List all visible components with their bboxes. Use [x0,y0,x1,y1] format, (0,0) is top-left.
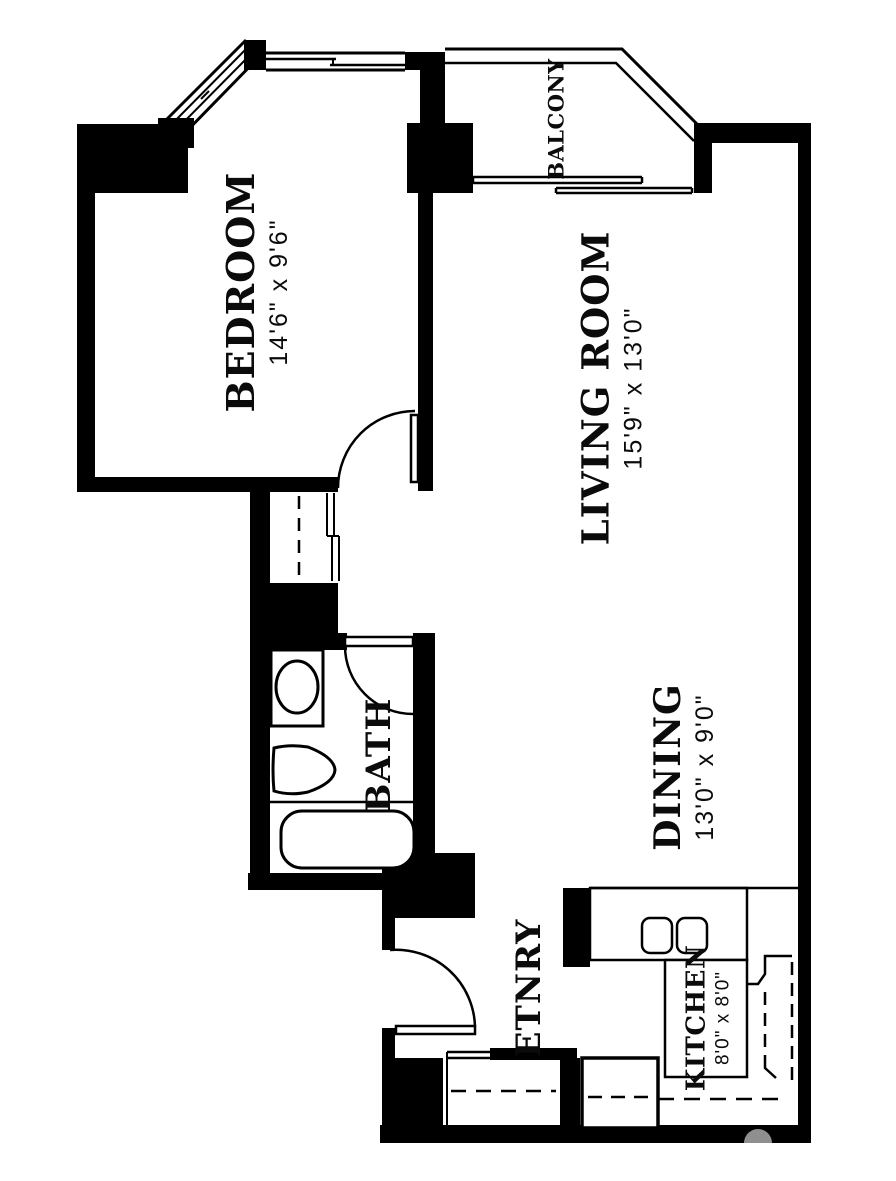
room-label-entry: ETNRY [512,919,546,1058]
room-label-kitchen: KITCHEN 8'0" x 8'0" [684,945,733,1091]
kitchen-sink-cabinet [582,1058,658,1128]
bathtub-icon [281,811,414,868]
bath-name: BATH [362,698,396,813]
floorplan-page: BEDROOM 14'6" x 9'6" LIVING ROOM 15'9" x… [0,0,896,1181]
entry-closet [447,1052,556,1125]
entry-door [390,950,475,1034]
room-label-bath: BATH [362,698,396,813]
hall-closet [299,493,339,581]
bedroom-bay-window [163,40,405,139]
room-label-dining: DINING 13'0" x 9'0" [650,683,718,850]
bedroom-door [338,411,418,488]
kitchen-dims: 8'0" x 8'0" [714,945,733,1091]
bedroom-dims: 14'6" x 9'6" [267,172,292,413]
balcony-railing [445,49,699,141]
balcony-name: BALCONY [546,58,567,180]
dining-name: DINING [650,683,686,850]
floorplan-drawing [0,0,896,1181]
dining-dims: 13'0" x 9'0" [693,683,718,850]
toilet-icon [273,746,335,794]
living-room-dims: 15'9" x 13'0" [622,231,647,546]
bedroom-name: BEDROOM [222,172,260,413]
kitchen-name: KITCHEN [684,945,710,1091]
living-room-name: LIVING ROOM [578,231,615,546]
entry-name: ETNRY [512,919,546,1058]
balcony-sliding-door [473,177,692,193]
room-label-living-room: LIVING ROOM 15'9" x 13'0" [578,231,647,546]
room-label-bedroom: BEDROOM 14'6" x 9'6" [222,172,292,413]
room-label-balcony: BALCONY [546,58,567,180]
sink-vanity-icon [271,650,323,726]
